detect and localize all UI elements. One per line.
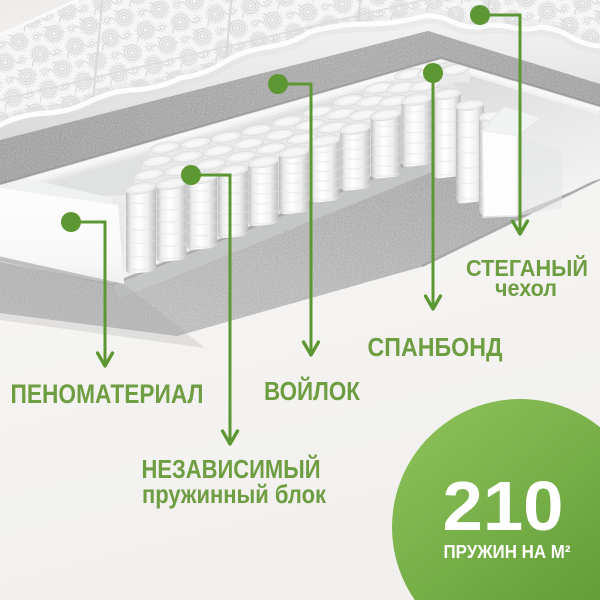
svg-text:210: 210 — [443, 467, 564, 545]
svg-text:ВОЙЛОК: ВОЙЛОК — [264, 376, 360, 406]
svg-text:ПЕНОМАТЕРИАЛ: ПЕНОМАТЕРИАЛ — [11, 379, 204, 409]
svg-text:ПРУЖИН НА М²: ПРУЖИН НА М² — [444, 542, 571, 562]
svg-text:чехол: чехол — [495, 275, 557, 301]
svg-text:пружинный блок: пружинный блок — [142, 479, 327, 509]
svg-text:СПАНБОНД: СПАНБОНД — [368, 332, 503, 362]
